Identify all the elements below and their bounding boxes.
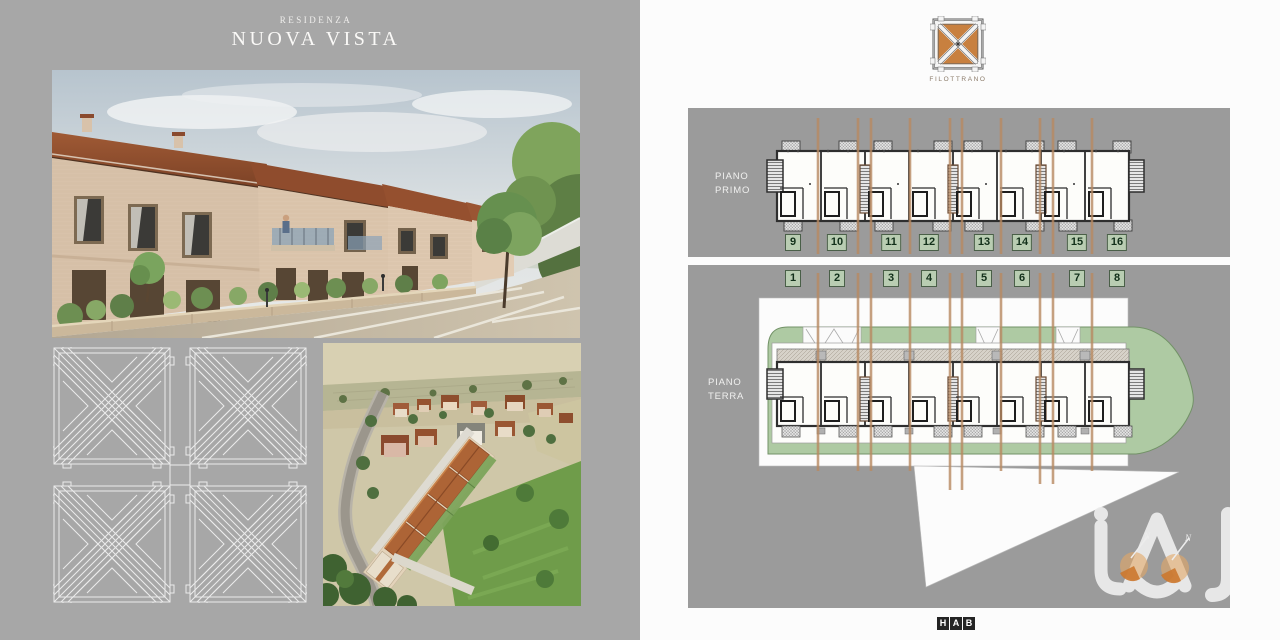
unit-badge-10: 10 [827,234,847,251]
footer-hab-logo: H A B [937,617,975,630]
unit-badge-14: 14 [1012,234,1032,251]
unit-badge-9: 9 [785,234,801,251]
svg-text:N: N [1184,533,1192,543]
brand-logo-icon [930,16,986,72]
project-subtitle: RESIDENZA [0,15,632,25]
right-page: FILOTTRANO [640,0,1280,640]
left-page: RESIDENZA NUOVA VISTA [0,0,640,640]
unit-badge-12: 12 [919,234,939,251]
floor-label-primo: PIANO PRIMO [715,170,750,199]
project-title-block: RESIDENZA NUOVA VISTA [0,0,632,51]
unit-badge-1: 1 [785,270,801,287]
hab-letter-a: A [950,617,962,630]
brand-caption: FILOTTRANO [878,76,1038,83]
floor-plan-panel-terra: N N PIANO TERRA 1 2 3 4 5 6 7 8 [688,265,1230,608]
unit-badge-16: 16 [1107,234,1127,251]
aerial-photo-image [323,343,581,606]
floor-label-terra: PIANO TERRA [708,376,744,405]
hab-letter-b: B [963,617,975,630]
floor-plan-primo-drawing [688,108,1230,257]
unit-badge-6: 6 [1014,270,1030,287]
unit-badge-5: 5 [976,270,992,287]
unit-badge-4: 4 [921,270,937,287]
unit-badge-8: 8 [1109,270,1125,287]
floor-plan-panel-primo: PIANO PRIMO 9 10 11 12 13 14 15 16 [688,108,1230,257]
unit-badge-11: 11 [881,234,901,251]
unit-badge-7: 7 [1069,270,1085,287]
pattern-artwork [53,347,307,603]
project-title: NUOVA VISTA [0,28,632,51]
unit-badge-15: 15 [1067,234,1087,251]
brochure-page: RESIDENZA NUOVA VISTA [0,0,1280,640]
exterior-render-image [52,70,580,338]
unit-badge-2: 2 [829,270,845,287]
svg-text:N: N [1143,531,1151,541]
hab-letter-h: H [937,617,949,630]
unit-badge-13: 13 [974,234,994,251]
floor-plan-terra-drawing: N N [688,265,1230,608]
unit-badge-3: 3 [883,270,899,287]
watermark: N N [1094,507,1228,595]
